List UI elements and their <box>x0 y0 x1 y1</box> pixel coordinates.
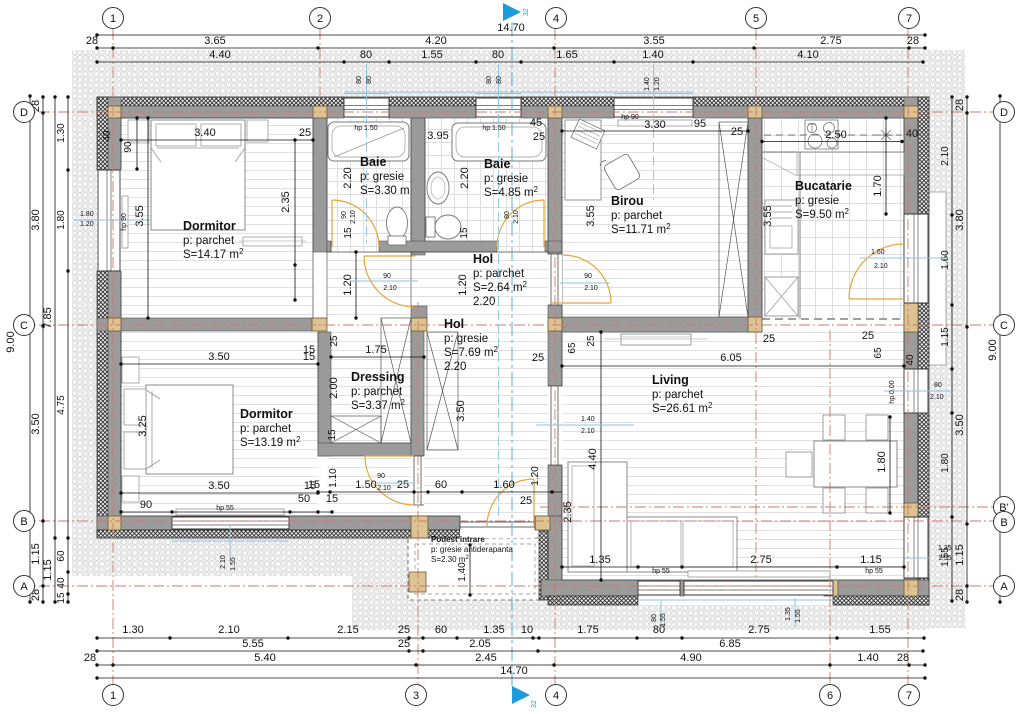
svg-text:14.70: 14.70 <box>500 665 528 677</box>
svg-text:40: 40 <box>56 577 67 589</box>
svg-text:32: 32 <box>531 700 538 708</box>
svg-text:95: 95 <box>694 118 706 130</box>
svg-text:80: 80 <box>360 49 372 61</box>
svg-text:p: gresie: p: gresie <box>360 171 404 183</box>
svg-text:10: 10 <box>521 624 533 636</box>
svg-text:1.15: 1.15 <box>940 327 951 347</box>
svg-text:3.80: 3.80 <box>30 209 42 230</box>
svg-text:2.10: 2.10 <box>874 263 888 270</box>
svg-text:1.55: 1.55 <box>869 624 890 636</box>
svg-text:S=3.37 m2: S=3.37 m2 <box>351 398 406 412</box>
svg-text:28: 28 <box>84 652 96 664</box>
svg-text:1.80: 1.80 <box>80 211 94 218</box>
svg-text:90: 90 <box>377 473 385 480</box>
svg-text:28: 28 <box>907 35 919 47</box>
svg-text:4.90: 4.90 <box>680 652 701 664</box>
svg-text:25: 25 <box>398 624 410 636</box>
svg-text:3.55: 3.55 <box>134 205 146 226</box>
svg-text:1.30: 1.30 <box>56 123 67 143</box>
svg-text:1.20: 1.20 <box>80 221 94 228</box>
svg-text:1.40: 1.40 <box>457 562 468 582</box>
svg-text:S=3.30 m: S=3.30 m <box>360 185 410 197</box>
svg-text:S=7.69 m2: S=7.69 m2 <box>444 345 499 359</box>
svg-text:2.75: 2.75 <box>820 35 841 47</box>
svg-text:3: 3 <box>413 690 419 702</box>
svg-text:2.35: 2.35 <box>562 501 574 522</box>
svg-text:25: 25 <box>397 479 409 491</box>
svg-text:Hol: Hol <box>473 252 493 266</box>
svg-text:90: 90 <box>140 499 152 511</box>
svg-text:3.80: 3.80 <box>954 209 966 230</box>
svg-text:1.35: 1.35 <box>785 607 792 621</box>
svg-text:1.55: 1.55 <box>230 557 237 571</box>
svg-text:25: 25 <box>520 495 532 507</box>
svg-text:Dormitor: Dormitor <box>240 407 293 421</box>
svg-text:1.80: 1.80 <box>876 451 888 472</box>
svg-text:3.50: 3.50 <box>208 480 229 492</box>
svg-text:Bucatarie: Bucatarie <box>795 179 852 193</box>
svg-text:2.20: 2.20 <box>444 361 466 373</box>
svg-text:1.60: 1.60 <box>493 479 514 491</box>
svg-text:p: gresie: p: gresie <box>444 333 488 345</box>
svg-text:25: 25 <box>532 352 544 364</box>
svg-text:B: B <box>20 516 27 528</box>
svg-text:4.20: 4.20 <box>425 35 446 47</box>
svg-text:Dormitor: Dormitor <box>183 219 236 233</box>
svg-text:2.10: 2.10 <box>218 624 239 636</box>
svg-text:3.65: 3.65 <box>204 35 225 47</box>
svg-text:60: 60 <box>56 550 67 562</box>
svg-text:2.20: 2.20 <box>473 296 495 308</box>
svg-text:1.20: 1.20 <box>530 466 541 486</box>
svg-text:hp 55: hp 55 <box>865 568 883 575</box>
svg-text:2.05: 2.05 <box>469 638 490 650</box>
svg-text:80: 80 <box>504 211 511 219</box>
svg-text:80: 80 <box>366 76 373 84</box>
svg-text:60: 60 <box>435 479 447 491</box>
svg-text:28: 28 <box>954 99 966 111</box>
svg-text:9.00: 9.00 <box>987 339 999 360</box>
svg-text:40: 40 <box>102 130 113 142</box>
svg-text:A: A <box>1000 581 1008 593</box>
svg-text:15: 15 <box>326 493 338 505</box>
svg-text:6.85: 6.85 <box>719 638 740 650</box>
svg-text:4.75: 4.75 <box>56 395 67 415</box>
svg-text:1: 1 <box>110 13 116 25</box>
svg-text:3.40: 3.40 <box>194 127 215 139</box>
svg-text:4: 4 <box>553 690 559 702</box>
svg-text:2.75: 2.75 <box>748 624 769 636</box>
svg-text:7: 7 <box>906 690 912 702</box>
svg-text:15: 15 <box>303 351 315 363</box>
svg-text:25: 25 <box>299 127 311 139</box>
svg-text:1.20: 1.20 <box>654 77 661 91</box>
svg-text:4.40: 4.40 <box>587 448 599 469</box>
svg-text:3.55: 3.55 <box>762 205 774 226</box>
svg-text:C: C <box>20 320 28 332</box>
svg-text:25: 25 <box>731 126 743 138</box>
svg-text:1.80: 1.80 <box>56 210 67 230</box>
svg-text:S=11.71 m2: S=11.71 m2 <box>611 222 671 236</box>
svg-text:90: 90 <box>383 273 391 280</box>
svg-text:p: gresie antiderapanta: p: gresie antiderapanta <box>431 545 513 554</box>
svg-text:3.50: 3.50 <box>30 413 42 434</box>
svg-text:80: 80 <box>492 49 504 61</box>
svg-text:1.20: 1.20 <box>342 274 354 295</box>
svg-text:1.60: 1.60 <box>871 249 885 256</box>
svg-text:15: 15 <box>343 227 354 239</box>
svg-text:C: C <box>1000 320 1008 332</box>
svg-text:2.75: 2.75 <box>750 554 771 566</box>
svg-text:3.55: 3.55 <box>585 205 597 226</box>
svg-text:2.20: 2.20 <box>459 167 471 188</box>
svg-text:A: A <box>20 581 28 593</box>
svg-text:hp 90: hp 90 <box>121 213 128 231</box>
svg-text:1.20: 1.20 <box>457 274 469 295</box>
svg-text:p: gresie: p: gresie <box>484 173 528 185</box>
svg-text:65: 65 <box>567 342 578 354</box>
svg-text:p: parchet: p: parchet <box>351 386 403 398</box>
svg-text:1.60: 1.60 <box>940 250 951 270</box>
svg-text:p: parchet: p: parchet <box>183 235 235 247</box>
svg-text:hp 55: hp 55 <box>216 505 234 512</box>
svg-text:15: 15 <box>459 227 470 239</box>
svg-text:80: 80 <box>486 76 493 84</box>
svg-text:80: 80 <box>356 76 363 84</box>
svg-text:3.50: 3.50 <box>455 400 467 421</box>
svg-text:6: 6 <box>827 690 833 702</box>
svg-text:hp 0.00: hp 0.00 <box>889 380 896 403</box>
svg-text:D: D <box>20 107 28 119</box>
svg-text:2.10: 2.10 <box>350 210 357 224</box>
svg-text:2.10: 2.10 <box>584 285 598 292</box>
svg-text:Dressing: Dressing <box>351 370 405 384</box>
svg-text:80: 80 <box>651 614 658 622</box>
svg-text:1.75: 1.75 <box>365 344 386 356</box>
svg-text:25: 25 <box>398 638 410 650</box>
svg-text:4: 4 <box>553 13 559 25</box>
svg-text:1: 1 <box>110 690 116 702</box>
svg-text:3.50: 3.50 <box>208 351 229 363</box>
svg-text:S=9.50 m2: S=9.50 m2 <box>795 207 850 221</box>
svg-text:15: 15 <box>304 480 316 492</box>
svg-text:1.15: 1.15 <box>954 544 966 565</box>
svg-text:p: parchet: p: parchet <box>652 389 704 401</box>
svg-text:2.10: 2.10 <box>513 210 520 224</box>
svg-text:1.65: 1.65 <box>556 49 577 61</box>
svg-text:1.55: 1.55 <box>660 613 667 627</box>
svg-text:1.40: 1.40 <box>581 416 595 423</box>
svg-text:1.15: 1.15 <box>30 543 42 564</box>
svg-text:4.10: 4.10 <box>797 49 818 61</box>
svg-text:32: 32 <box>523 8 530 16</box>
svg-text:2.20: 2.20 <box>342 167 354 188</box>
svg-text:3.25: 3.25 <box>137 415 149 436</box>
svg-text:2.10: 2.10 <box>940 146 951 166</box>
svg-text:hp 1.50: hp 1.50 <box>354 125 377 132</box>
svg-text:1.80: 1.80 <box>940 453 951 473</box>
svg-text:1.15: 1.15 <box>860 554 881 566</box>
svg-text:2.35: 2.35 <box>280 191 292 212</box>
svg-text:4.40: 4.40 <box>209 49 230 61</box>
svg-text:1.35: 1.35 <box>589 554 610 566</box>
svg-text:25: 25 <box>533 131 545 143</box>
svg-text:28: 28 <box>86 35 98 47</box>
svg-text:2.45: 2.45 <box>475 652 496 664</box>
svg-text:p: parchet: p: parchet <box>611 210 663 222</box>
svg-text:40: 40 <box>906 128 918 140</box>
svg-text:1.55: 1.55 <box>421 49 442 61</box>
svg-text:1.55: 1.55 <box>795 609 802 623</box>
svg-text:Baie: Baie <box>484 157 510 171</box>
svg-text:25: 25 <box>763 333 775 345</box>
svg-text:45: 45 <box>530 117 542 129</box>
svg-text:40: 40 <box>905 354 916 366</box>
svg-text:1.15: 1.15 <box>42 559 54 580</box>
svg-text:D: D <box>1000 107 1008 119</box>
svg-text:25: 25 <box>329 335 340 347</box>
svg-text:1.75: 1.75 <box>577 624 598 636</box>
svg-text:S=26.61 m2: S=26.61 m2 <box>652 401 713 415</box>
svg-text:1.40: 1.40 <box>857 652 878 664</box>
svg-text:7.85: 7.85 <box>42 307 54 328</box>
svg-text:Birou: Birou <box>611 194 644 208</box>
svg-text:1.55: 1.55 <box>938 555 952 562</box>
svg-text:5.40: 5.40 <box>254 652 275 664</box>
svg-text:50: 50 <box>298 493 310 505</box>
svg-text:7: 7 <box>906 13 912 25</box>
svg-text:9.00: 9.00 <box>5 331 17 352</box>
svg-text:28: 28 <box>954 589 966 601</box>
svg-text:1.35: 1.35 <box>483 624 504 636</box>
svg-text:1.30: 1.30 <box>122 624 143 636</box>
svg-text:1.70: 1.70 <box>872 175 884 196</box>
svg-text:5.55: 5.55 <box>242 638 263 650</box>
svg-text:hp 90: hp 90 <box>621 114 639 121</box>
svg-text:2.10: 2.10 <box>930 394 944 401</box>
svg-text:1.40: 1.40 <box>642 49 663 61</box>
svg-text:1.35: 1.35 <box>938 545 952 552</box>
svg-text:B: B <box>1000 517 1007 529</box>
svg-text:80: 80 <box>934 382 942 389</box>
svg-text:6.05: 6.05 <box>720 352 741 364</box>
svg-text:14.70: 14.70 <box>497 22 525 34</box>
svg-text:15: 15 <box>327 429 338 441</box>
svg-text:25: 25 <box>586 335 597 347</box>
svg-text:p: parchet: p: parchet <box>473 268 525 280</box>
svg-text:5: 5 <box>753 13 759 25</box>
svg-text:2.10: 2.10 <box>383 285 397 292</box>
svg-text:Podest intrare: Podest intrare <box>431 535 485 544</box>
svg-text:1.10: 1.10 <box>328 468 339 488</box>
svg-text:2.10: 2.10 <box>377 485 391 492</box>
svg-text:2.15: 2.15 <box>337 624 358 636</box>
svg-text:p: parchet: p: parchet <box>240 423 292 435</box>
svg-text:65: 65 <box>873 347 884 359</box>
svg-text:2.50: 2.50 <box>825 129 846 141</box>
svg-text:2: 2 <box>317 13 323 25</box>
svg-text:3.30: 3.30 <box>644 119 665 131</box>
svg-text:80: 80 <box>496 76 503 84</box>
svg-text:3.50: 3.50 <box>954 414 966 435</box>
svg-text:Living: Living <box>652 373 689 387</box>
svg-text:Baie: Baie <box>360 155 386 169</box>
svg-text:3.95: 3.95 <box>427 130 448 142</box>
svg-text:S=13.19 m2: S=13.19 m2 <box>240 435 301 449</box>
svg-text:15: 15 <box>56 592 67 604</box>
svg-text:3.55: 3.55 <box>643 35 664 47</box>
svg-text:60: 60 <box>435 624 447 636</box>
svg-text:90: 90 <box>584 273 592 280</box>
svg-text:90: 90 <box>123 141 134 153</box>
svg-text:2.00: 2.00 <box>328 377 340 398</box>
svg-text:25: 25 <box>862 330 874 342</box>
svg-text:hp 1.50: hp 1.50 <box>482 125 505 132</box>
svg-text:S=2.64 m2: S=2.64 m2 <box>473 280 528 294</box>
svg-text:hp 55: hp 55 <box>652 568 670 575</box>
svg-text:Hol: Hol <box>444 317 464 331</box>
svg-text:1.50: 1.50 <box>355 479 376 491</box>
svg-text:1.40: 1.40 <box>644 77 651 91</box>
svg-text:2.10: 2.10 <box>220 555 227 569</box>
svg-text:28: 28 <box>897 652 909 664</box>
svg-text:90: 90 <box>341 211 348 219</box>
svg-text:S=14.17 m2: S=14.17 m2 <box>183 247 244 261</box>
svg-text:S=4.85 m2: S=4.85 m2 <box>484 185 539 199</box>
svg-text:2.10: 2.10 <box>581 428 595 435</box>
svg-text:p: gresie: p: gresie <box>795 195 839 207</box>
